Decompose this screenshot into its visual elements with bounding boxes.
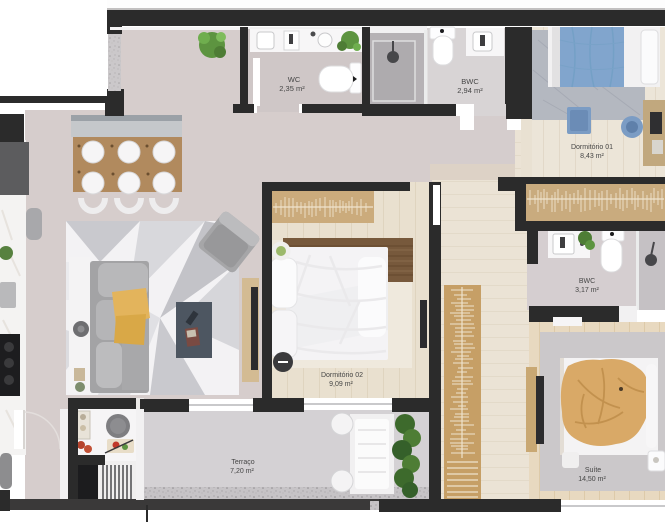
svg-text:BWC: BWC	[579, 278, 595, 285]
svg-text:7,20 m²: 7,20 m²	[230, 468, 254, 475]
svg-text:2,94 m²: 2,94 m²	[457, 86, 483, 95]
svg-text:BWC: BWC	[461, 77, 479, 86]
svg-text:2,35 m²: 2,35 m²	[279, 84, 305, 93]
svg-text:3,17 m²: 3,17 m²	[575, 287, 599, 294]
svg-text:Suíte: Suíte	[585, 467, 601, 474]
svg-text:8,43 m²: 8,43 m²	[580, 153, 604, 160]
svg-text:9,09 m²: 9,09 m²	[329, 381, 353, 388]
svg-text:14,50 m²: 14,50 m²	[578, 476, 606, 483]
svg-text:Dormitório 02: Dormitório 02	[321, 372, 363, 379]
svg-text:WC: WC	[288, 75, 301, 84]
svg-text:Terraço: Terraço	[231, 459, 254, 466]
svg-text:Dormitório 01: Dormitório 01	[571, 144, 613, 151]
